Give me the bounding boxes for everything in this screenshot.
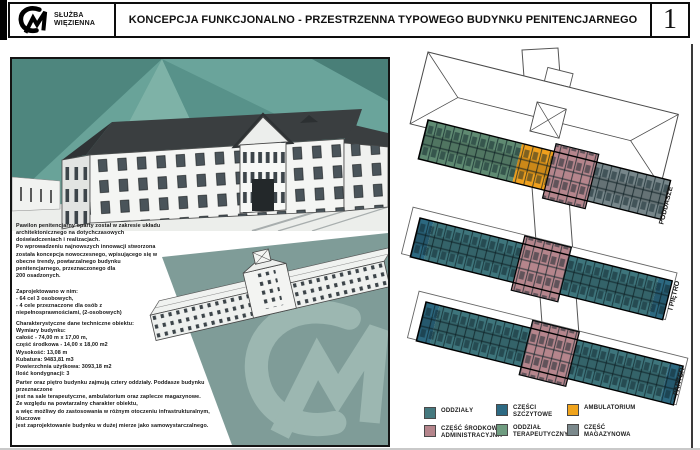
legend-label-administracyjna: CZĘŚĆ ŚRODKOWA ADMINISTRACYJNA bbox=[441, 425, 502, 439]
legend-label-terapeutyczny: ODDZIAŁ TERAPEUTYCZNY bbox=[513, 424, 568, 438]
agency-name-line1: SŁUŻBA bbox=[54, 12, 95, 20]
sheet-number: 1 bbox=[650, 4, 688, 36]
legend-swatch-administracyjna bbox=[424, 425, 436, 437]
legend-label-ambulatorium: AMBULATORIUM bbox=[584, 404, 636, 412]
legend-label-magazynowa: CZĘŚĆ MAGAZYNOWA bbox=[584, 424, 631, 438]
legend-label-szczytowe: CZĘŚCI SZCZYTOWE bbox=[513, 404, 552, 418]
legend-item-szczytowe: CZĘŚCI SZCZYTOWE bbox=[496, 404, 552, 418]
prison-service-logo: SŁUŻBA WIĘZIENNA bbox=[10, 4, 116, 36]
header-bar: SŁUŻBA WIĘZIENNA KONCEPCJA FUNKCJONALNO … bbox=[8, 2, 690, 38]
sw-eagle-icon bbox=[16, 5, 50, 35]
legend-item-administracyjna: CZĘŚĆ ŚRODKOWA ADMINISTRACYJNA bbox=[424, 425, 502, 439]
left-panel: Pawilon penitencjarny oparty został w za… bbox=[10, 57, 390, 447]
paragraph-intro: Pawilon penitencjarny oparty został w za… bbox=[16, 223, 196, 280]
presentation-board: SŁUŻBA WIĘZIENNA KONCEPCJA FUNKCJONALNO … bbox=[0, 0, 700, 450]
legend-swatch-magazynowa bbox=[567, 424, 579, 436]
legend-item-oddzialy: ODDZIAŁY bbox=[424, 407, 473, 419]
legend-item-magazynowa: CZĘŚĆ MAGAZYNOWA bbox=[567, 424, 631, 438]
legend-item-terapeutyczny: ODDZIAŁ TERAPEUTYCZNY bbox=[496, 424, 568, 438]
agency-name-line2: WIĘZIENNA bbox=[54, 20, 95, 28]
building-perspective-render bbox=[12, 59, 388, 231]
legend-label-oddzialy: ODDZIAŁY bbox=[441, 407, 473, 415]
agency-name: SŁUŻBA WIĘZIENNA bbox=[54, 12, 95, 28]
legend-swatch-oddzialy bbox=[424, 407, 436, 419]
floor-plans: PODDASZE I PIĘTRO PARTER bbox=[398, 44, 692, 406]
legend-item-ambulatorium: AMBULATORIUM bbox=[567, 404, 636, 416]
content-right-border bbox=[691, 44, 693, 448]
legend-swatch-ambulatorium bbox=[567, 404, 579, 416]
paragraph-tech-data: Charakterystyczne dane techniczne obiekt… bbox=[16, 321, 196, 378]
left-edge-strip bbox=[0, 0, 7, 40]
paragraph-floor-use: Parter oraz piętro budynku zajmują czter… bbox=[16, 380, 231, 430]
legend-swatch-terapeutyczny bbox=[496, 424, 508, 436]
board-title: KONCEPCJA FUNKCJONALNO - PRZESTRZENNA TY… bbox=[116, 4, 650, 36]
paragraph-program: Zaprojektowano w nim: - 64 cel 3 osobowy… bbox=[16, 289, 196, 318]
legend-swatch-szczytowe bbox=[496, 404, 508, 416]
